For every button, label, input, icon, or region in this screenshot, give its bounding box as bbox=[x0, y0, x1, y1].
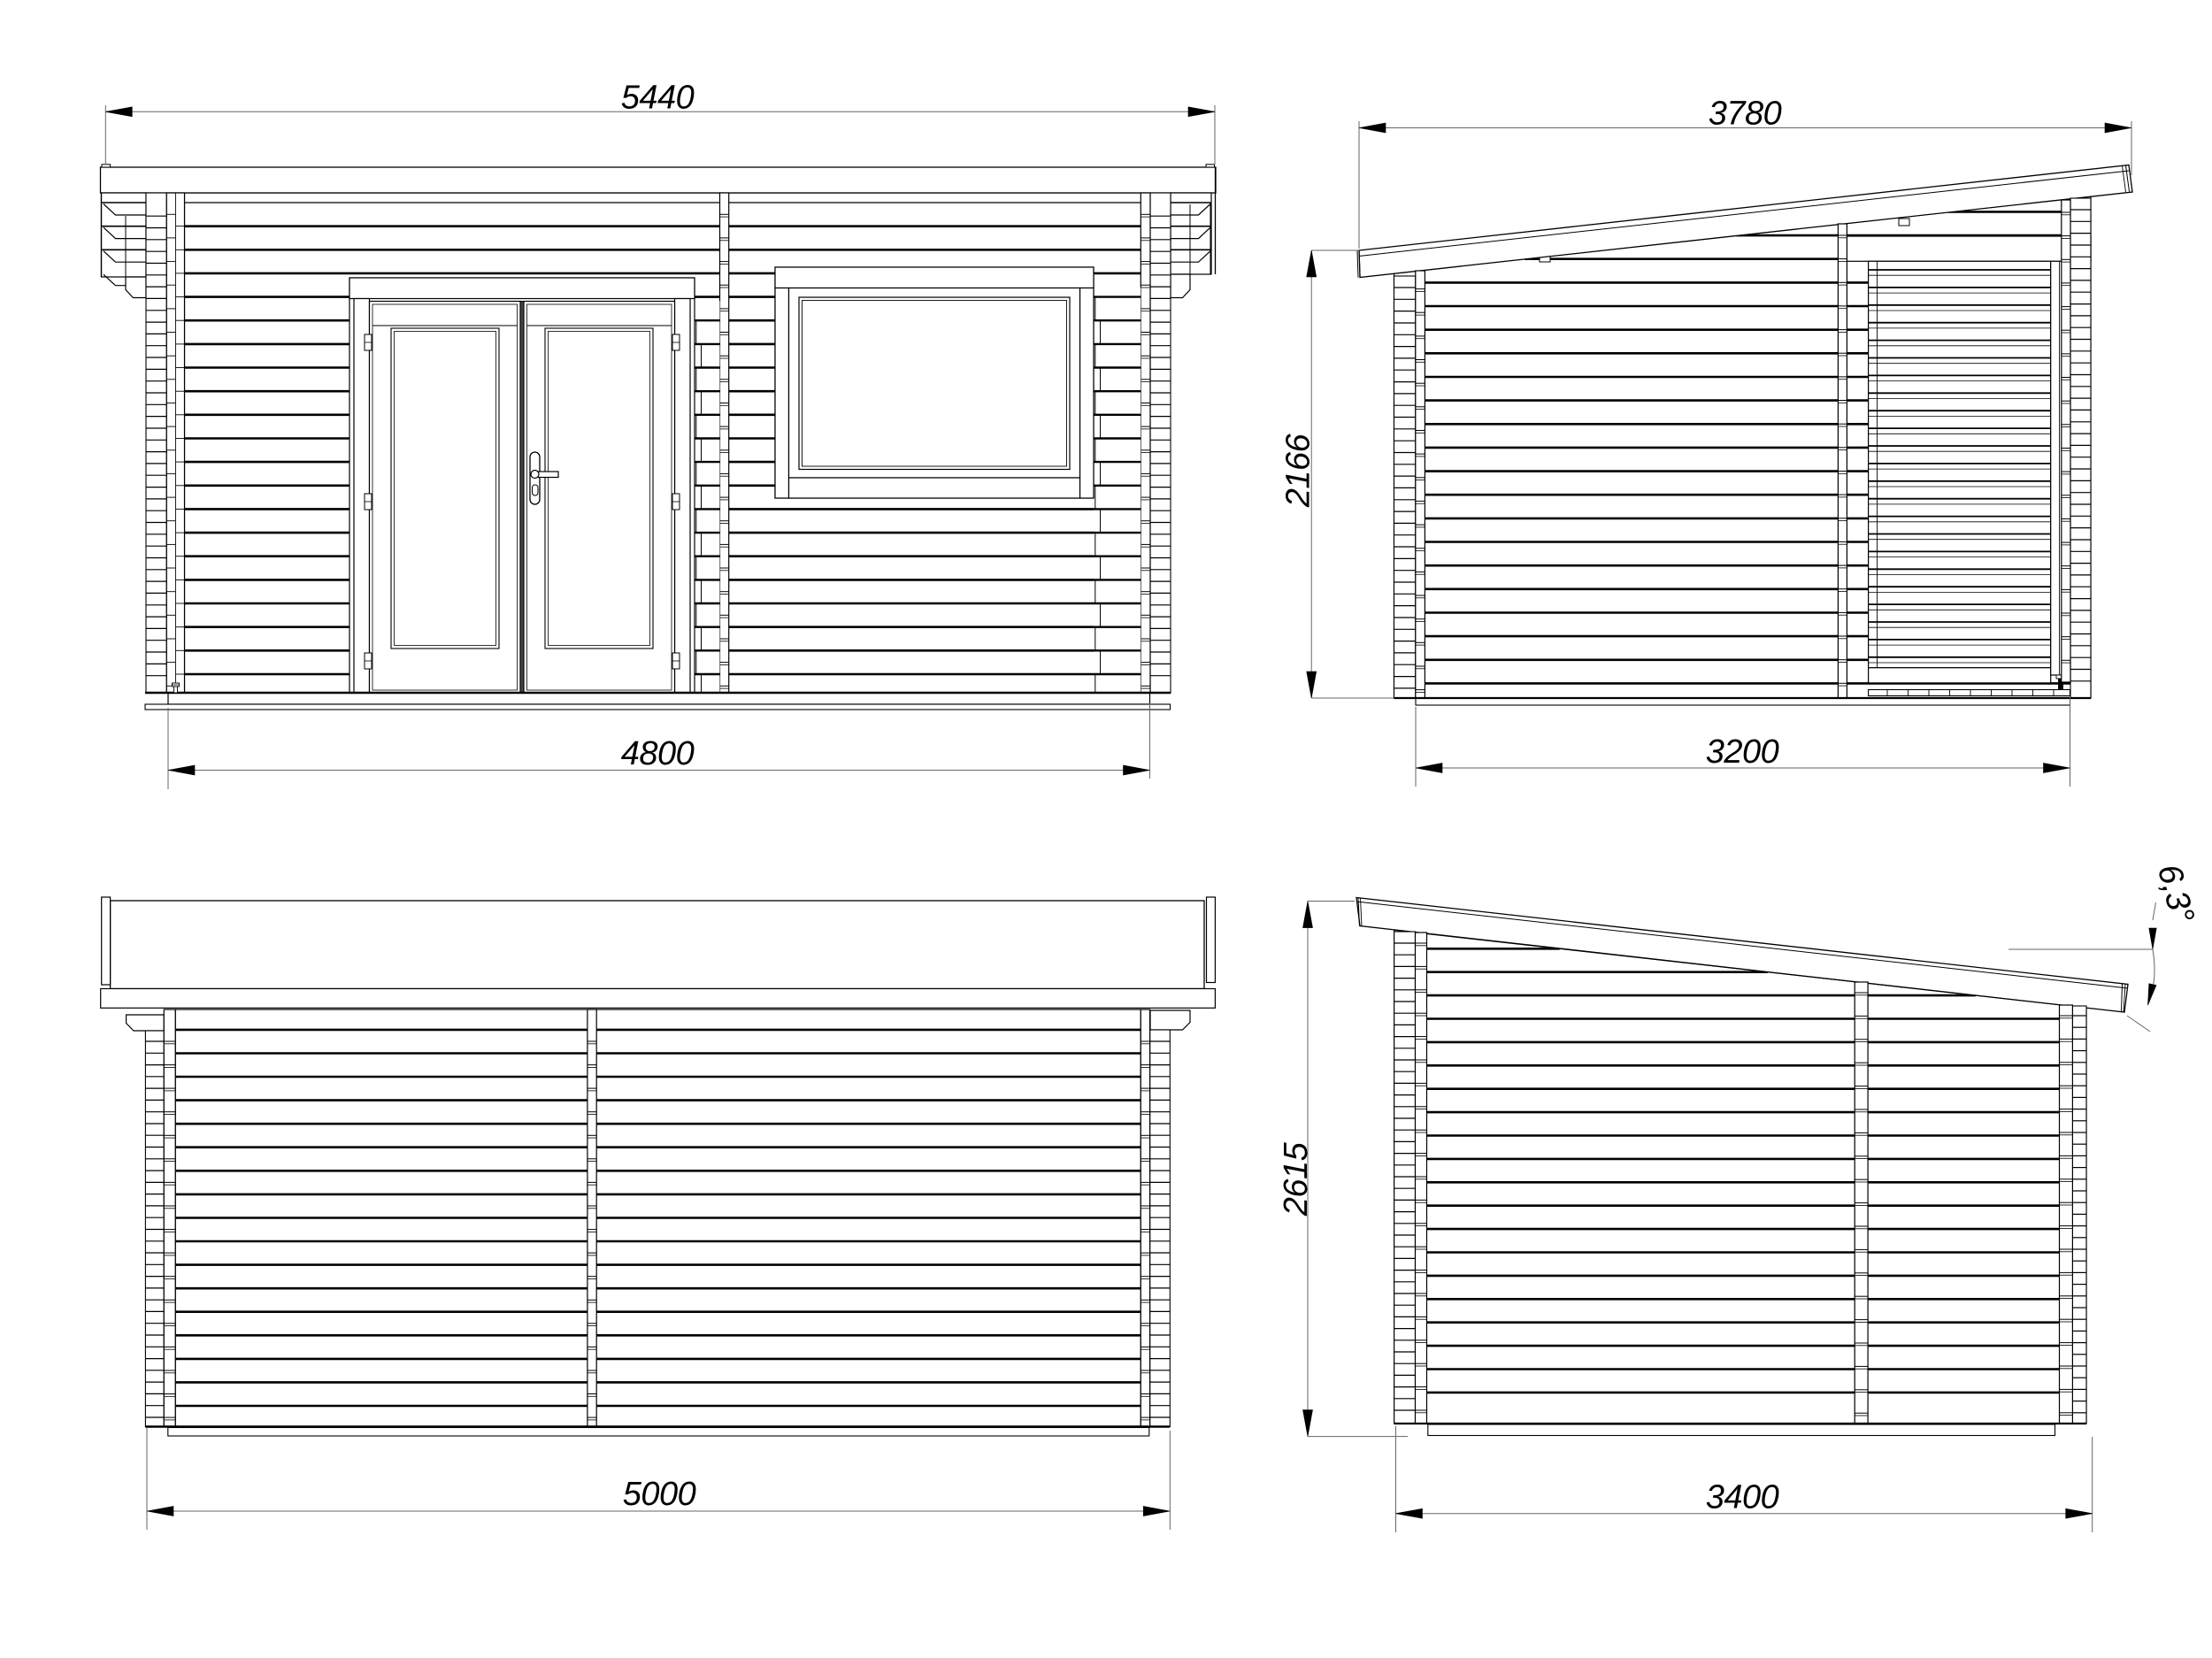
svg-text:3400: 3400 bbox=[1706, 1478, 1779, 1516]
svg-text:2615: 2615 bbox=[1278, 1141, 1315, 1217]
svg-text:5440: 5440 bbox=[621, 80, 695, 117]
svg-text:3780: 3780 bbox=[1709, 96, 1782, 133]
svg-text:5000: 5000 bbox=[623, 1476, 696, 1513]
svg-text:3200: 3200 bbox=[1706, 733, 1779, 771]
svg-text:2166: 2166 bbox=[1280, 433, 1317, 508]
svg-text:4800: 4800 bbox=[621, 735, 695, 772]
